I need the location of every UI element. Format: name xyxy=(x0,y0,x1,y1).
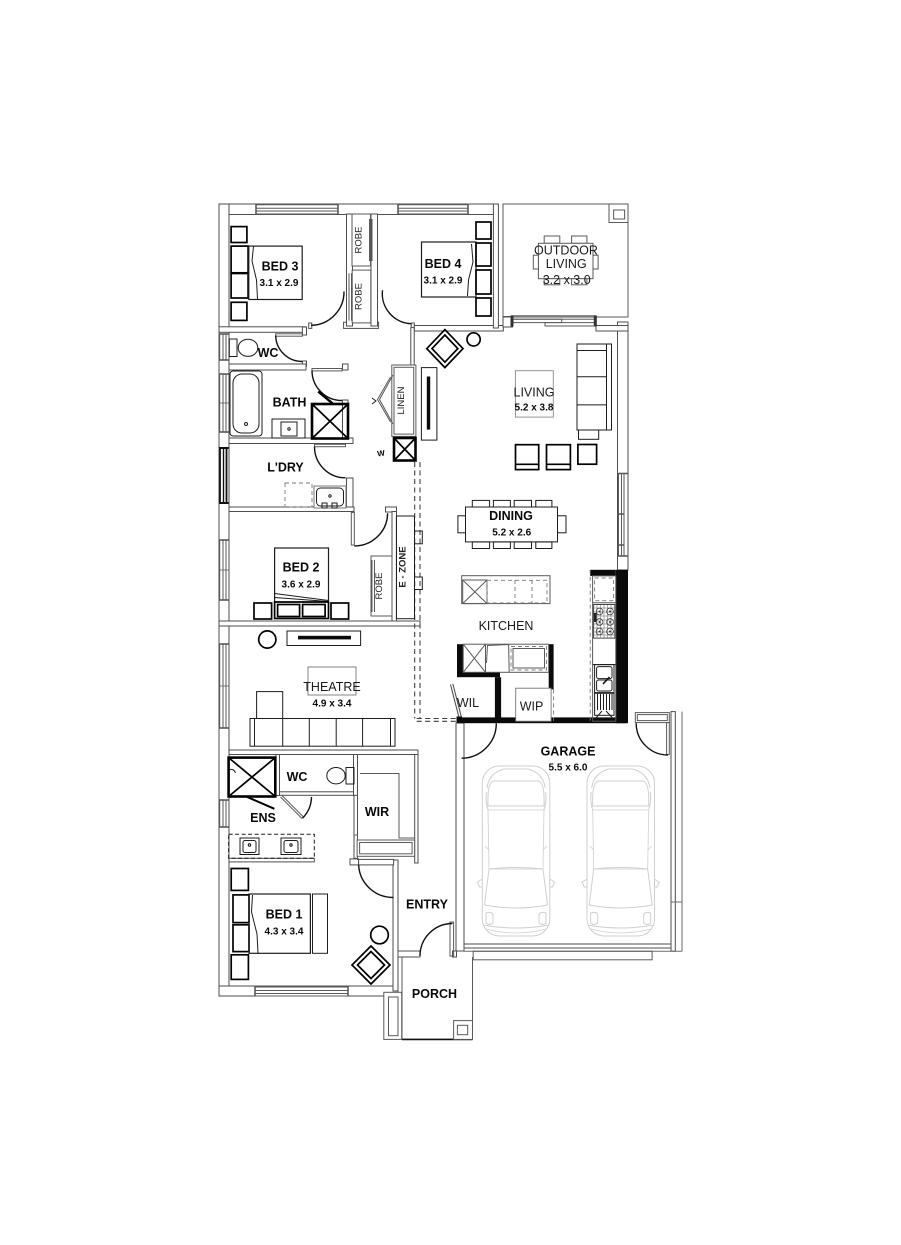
svg-text:3.6 x 2.9: 3.6 x 2.9 xyxy=(282,580,321,591)
svg-text:LINEN: LINEN xyxy=(396,386,407,414)
svg-text:LIVING: LIVING xyxy=(546,257,587,271)
svg-text:BED 1: BED 1 xyxy=(266,908,303,922)
svg-text:ROBE: ROBE xyxy=(354,227,365,254)
svg-text:5.5 x 6.0: 5.5 x 6.0 xyxy=(549,763,588,774)
svg-text:BATH: BATH xyxy=(273,396,307,410)
svg-text:W: W xyxy=(377,448,386,458)
svg-text:GARAGE: GARAGE xyxy=(541,745,596,759)
svg-text:BED 3: BED 3 xyxy=(262,260,299,274)
svg-text:ENS: ENS xyxy=(250,811,276,825)
svg-text:5.2 x 2.6: 5.2 x 2.6 xyxy=(492,528,531,539)
svg-text:WC: WC xyxy=(258,346,279,360)
svg-text:LIVING: LIVING xyxy=(514,386,555,400)
svg-text:OUTDOOR: OUTDOOR xyxy=(534,244,598,258)
svg-text:5.2 x 3.8: 5.2 x 3.8 xyxy=(515,403,554,414)
svg-text:KITCHEN: KITCHEN xyxy=(479,619,534,633)
svg-text:ROBE: ROBE xyxy=(354,283,365,310)
svg-text:4.3 x 3.4: 4.3 x 3.4 xyxy=(265,927,304,938)
svg-text:L'DRY: L'DRY xyxy=(267,461,304,475)
svg-text:PORCH: PORCH xyxy=(412,987,457,1001)
svg-text:WIL: WIL xyxy=(457,696,479,710)
svg-text:WIR: WIR xyxy=(365,805,389,819)
svg-text:WC: WC xyxy=(287,770,308,784)
svg-text:4.9 x 3.4: 4.9 x 3.4 xyxy=(313,699,352,710)
svg-text:THEATRE: THEATRE xyxy=(303,680,360,694)
svg-text:3.2 x 3.0: 3.2 x 3.0 xyxy=(543,273,591,287)
svg-text:E - ZONE: E - ZONE xyxy=(398,546,409,587)
svg-text:3.1 x 2.9: 3.1 x 2.9 xyxy=(424,276,463,287)
svg-text:ENTRY: ENTRY xyxy=(406,898,449,912)
svg-text:WIP: WIP xyxy=(520,700,544,714)
svg-text:3.1 x 2.9: 3.1 x 2.9 xyxy=(260,278,299,289)
svg-text:BED 2: BED 2 xyxy=(283,561,320,575)
svg-text:DINING: DINING xyxy=(489,509,533,523)
svg-text:ROBE: ROBE xyxy=(374,573,385,600)
svg-text:BED 4: BED 4 xyxy=(425,257,462,271)
